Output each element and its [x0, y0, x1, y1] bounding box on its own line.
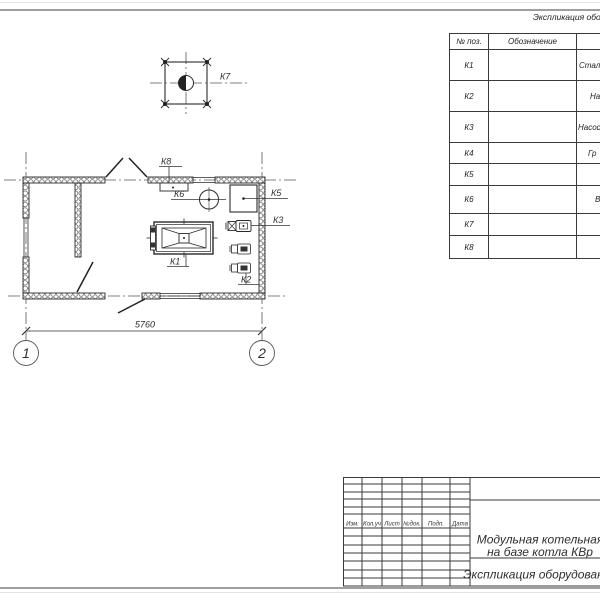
dimension-value: 5760	[135, 320, 155, 330]
name-fragment: На	[590, 92, 600, 101]
name-fragment: Гр	[588, 149, 596, 158]
boiler-symbol	[147, 219, 218, 267]
sheet-title: Экспликация оборудования	[463, 568, 600, 582]
label-k3: К3	[273, 215, 283, 225]
cell-designation	[489, 81, 577, 111]
tb-header-izm: Изм.	[346, 522, 359, 528]
tb-header-koluch: Кол.уч	[363, 522, 381, 528]
table-row: К2 На	[450, 81, 600, 112]
col-header-pos: № поз.	[450, 34, 489, 49]
table-row: К7	[450, 214, 600, 236]
table-row: К6 В	[450, 186, 600, 214]
cell-name	[577, 164, 600, 185]
cell-name	[577, 236, 600, 258]
table-row: К3 Насос	[450, 112, 600, 143]
tb-header-data: Дата	[451, 522, 468, 528]
table-row: К8	[450, 236, 600, 258]
project-title-line2: на базе котла КВр	[487, 545, 593, 559]
window-bottom	[160, 293, 200, 298]
label-k6: К6	[174, 189, 184, 199]
name-fragment: Стал	[579, 61, 600, 70]
col-header-designation: Обозначение	[489, 34, 577, 49]
cell-name: Стал	[577, 50, 600, 80]
col-header-name	[577, 34, 600, 49]
walls	[23, 177, 265, 299]
table-row: К4 Гр	[450, 143, 600, 164]
label-k2: К2	[241, 275, 251, 285]
cell-name: Гр	[577, 143, 600, 163]
cell-pos: К8	[450, 236, 489, 258]
cell-designation	[489, 164, 577, 185]
axis-number-2: 2	[257, 345, 266, 361]
name-fragment: В	[595, 195, 600, 204]
drawing-sheet: К7 К8 К6 К5	[0, 0, 600, 600]
cell-designation	[489, 186, 577, 213]
cell-pos: К4	[450, 143, 489, 163]
cell-designation	[489, 112, 577, 142]
table-row: К1 Стал	[450, 50, 600, 81]
tb-header-podp: Подп.	[428, 522, 444, 528]
label-k5: К5	[271, 188, 282, 198]
cell-pos: К6	[450, 186, 489, 213]
cell-name: Насос	[577, 112, 600, 142]
tb-header-ndok: №док.	[403, 521, 421, 528]
equipment-table-title: Экспликация оборудования	[533, 12, 600, 22]
equipment-table: № поз. Обозначение К1 Стал К2 На К3 Насо…	[449, 33, 600, 259]
tb-header-list: Лист	[383, 522, 399, 528]
label-k7: К7	[220, 72, 231, 82]
axis-number-1: 1	[22, 345, 30, 361]
table-header-row: № поз. Обозначение	[450, 34, 600, 50]
cell-name: В	[577, 186, 600, 213]
cell-pos: К3	[450, 112, 489, 142]
label-k8: К8	[161, 157, 171, 167]
cell-designation	[489, 50, 577, 80]
title-block: Изм. Кол.уч Лист №док. Подп. Дата Модуль…	[343, 477, 600, 587]
cell-designation	[489, 143, 577, 163]
name-fragment: Насос	[578, 123, 600, 132]
label-k1: К1	[170, 257, 180, 267]
cell-designation	[489, 236, 577, 258]
cell-name: На	[577, 81, 600, 111]
cell-designation	[489, 214, 577, 235]
cell-pos: К5	[450, 164, 489, 185]
cell-name	[577, 214, 600, 235]
cell-pos: К2	[450, 81, 489, 111]
cell-pos: К1	[450, 50, 489, 80]
cell-pos: К7	[450, 214, 489, 235]
table-row: К5	[450, 164, 600, 186]
